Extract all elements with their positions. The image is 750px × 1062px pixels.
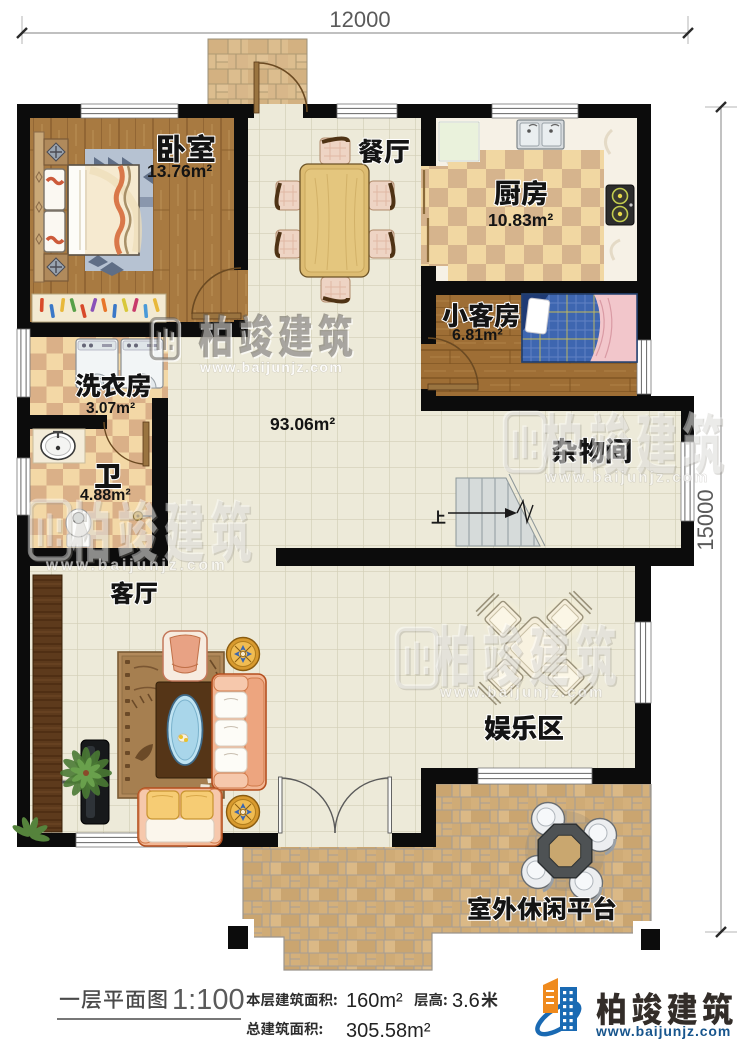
svg-text:www.baijunjz.com: www.baijunjz.com bbox=[439, 684, 605, 701]
svg-text:15000: 15000 bbox=[693, 489, 718, 550]
svg-text:3.6: 3.6 bbox=[452, 990, 480, 1012]
svg-text:www.baijunjz.com: www.baijunjz.com bbox=[595, 1023, 731, 1039]
svg-text:6.81m²: 6.81m² bbox=[452, 327, 503, 344]
svg-text:93.06m²: 93.06m² bbox=[270, 414, 335, 434]
svg-text:13.76m²: 13.76m² bbox=[147, 161, 212, 181]
svg-text:www.baijunjz.com: www.baijunjz.com bbox=[544, 469, 710, 486]
svg-text:305.58m²: 305.58m² bbox=[346, 1020, 431, 1042]
svg-text:www.baijunjz.com: www.baijunjz.com bbox=[45, 557, 228, 574]
svg-text:160m²: 160m² bbox=[346, 990, 403, 1012]
svg-text:www.baijunjz.com: www.baijunjz.com bbox=[199, 359, 343, 375]
svg-text:4.88m²: 4.88m² bbox=[80, 487, 131, 504]
svg-text:1:100: 1:100 bbox=[172, 984, 245, 1016]
svg-text:10.83m²: 10.83m² bbox=[488, 210, 553, 230]
svg-text:3.07m²: 3.07m² bbox=[86, 400, 135, 417]
svg-text:12000: 12000 bbox=[329, 7, 390, 32]
